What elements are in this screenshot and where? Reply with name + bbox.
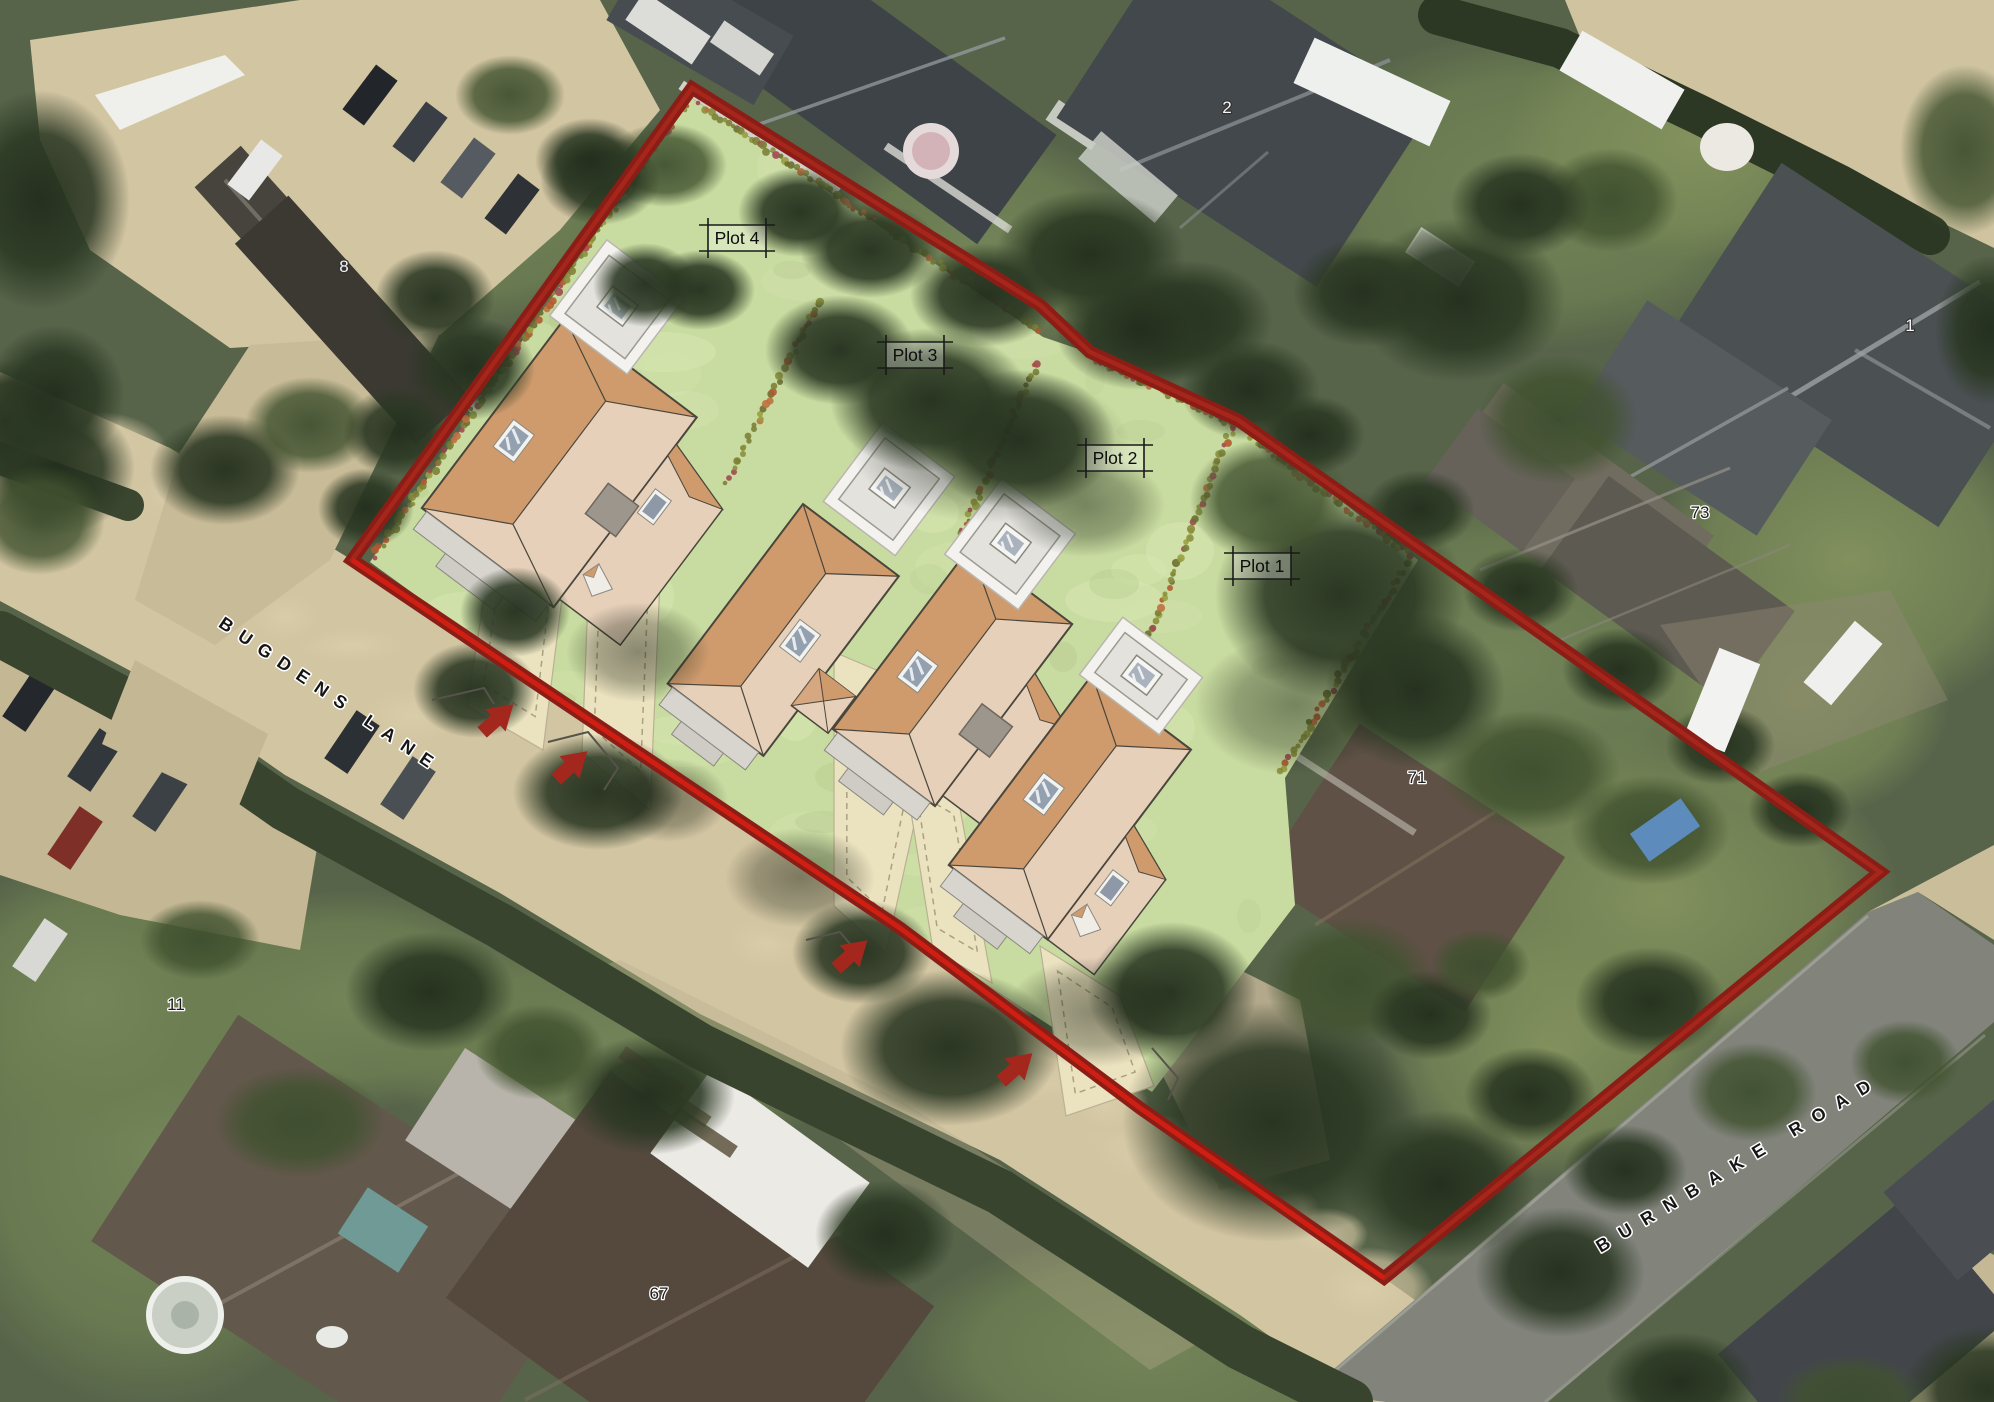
svg-text:Plot 2: Plot 2 (1093, 448, 1138, 468)
svg-text:73: 73 (1691, 503, 1710, 522)
svg-text:Plot 3: Plot 3 (893, 345, 938, 365)
svg-text:71: 71 (1408, 768, 1427, 787)
svg-text:Plot 4: Plot 4 (715, 228, 760, 248)
svg-text:11: 11 (167, 995, 185, 1014)
svg-text:67: 67 (650, 1284, 669, 1303)
svg-text:2: 2 (1222, 98, 1231, 117)
svg-text:1: 1 (1905, 316, 1914, 335)
svg-text:8: 8 (339, 257, 348, 276)
svg-text:Plot 1: Plot 1 (1240, 556, 1285, 576)
